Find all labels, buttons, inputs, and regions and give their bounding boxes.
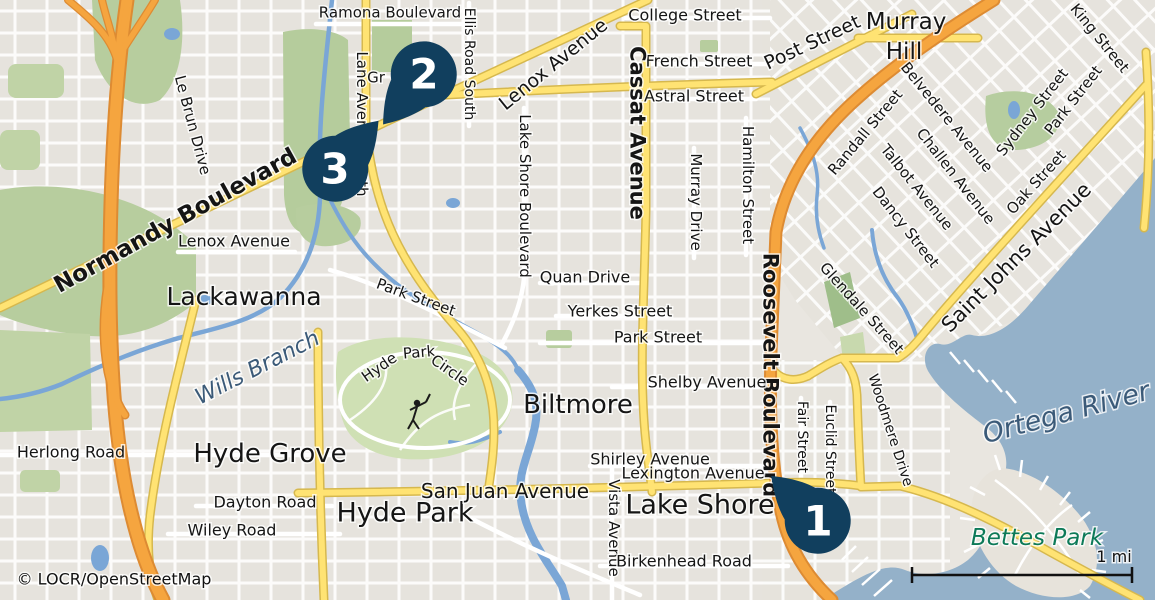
scale-label: 1 mi	[1096, 547, 1131, 566]
map-label: Herlong Road	[17, 443, 125, 462]
map-label: Lenox Avenue	[178, 232, 290, 251]
map-label: Lake Shore	[625, 489, 774, 520]
map-label: Fair Street	[794, 401, 810, 473]
map-label: © LOCR/OpenStreetMap	[17, 570, 212, 589]
map-label: Shelby Avenue	[648, 373, 767, 392]
map-label: Bettes Park	[971, 525, 1105, 551]
map-label: Murray	[866, 9, 947, 35]
map-label: Wiley Road	[188, 521, 277, 540]
map-label: Gr	[367, 68, 386, 86]
map-label: Birkenhead Road	[616, 552, 752, 571]
map-label: Hill	[886, 39, 922, 65]
map-label: French Street	[646, 52, 753, 71]
map-label: College Street	[628, 6, 741, 25]
map-canvas[interactable]: Ramona BoulevardLane Avenue SouthEllis R…	[0, 0, 1155, 600]
map-label: Astral Street	[644, 87, 744, 106]
marker-number: 2	[409, 50, 438, 99]
map-label: Ramona Boulevard	[319, 3, 461, 21]
marker-number: 1	[803, 497, 832, 546]
map-label: Lake Shore Boulevard	[516, 114, 534, 278]
map-label: San Juan Avenue	[421, 479, 589, 503]
map-label: Ellis Road South	[461, 8, 477, 121]
map-svg: Ramona BoulevardLane Avenue SouthEllis R…	[0, 0, 1155, 600]
map-label: Hyde Grove	[193, 439, 346, 469]
map-label: Yerkes Street	[567, 302, 673, 321]
map-label: Lexington Avenue	[621, 464, 764, 483]
map-label: Hamilton Street	[739, 126, 757, 244]
map-label: Park Street	[614, 328, 702, 347]
map-label: Quan Drive	[540, 268, 630, 287]
map-label: Dayton Road	[213, 493, 316, 512]
map-label: Euclid Street	[822, 404, 838, 494]
map-label: Cassat Avenue	[626, 46, 650, 220]
map-label: Biltmore	[523, 390, 633, 420]
map-label: Lackawanna	[166, 282, 321, 311]
marker-number: 3	[320, 145, 349, 194]
map-label: Murray Drive	[687, 153, 705, 250]
